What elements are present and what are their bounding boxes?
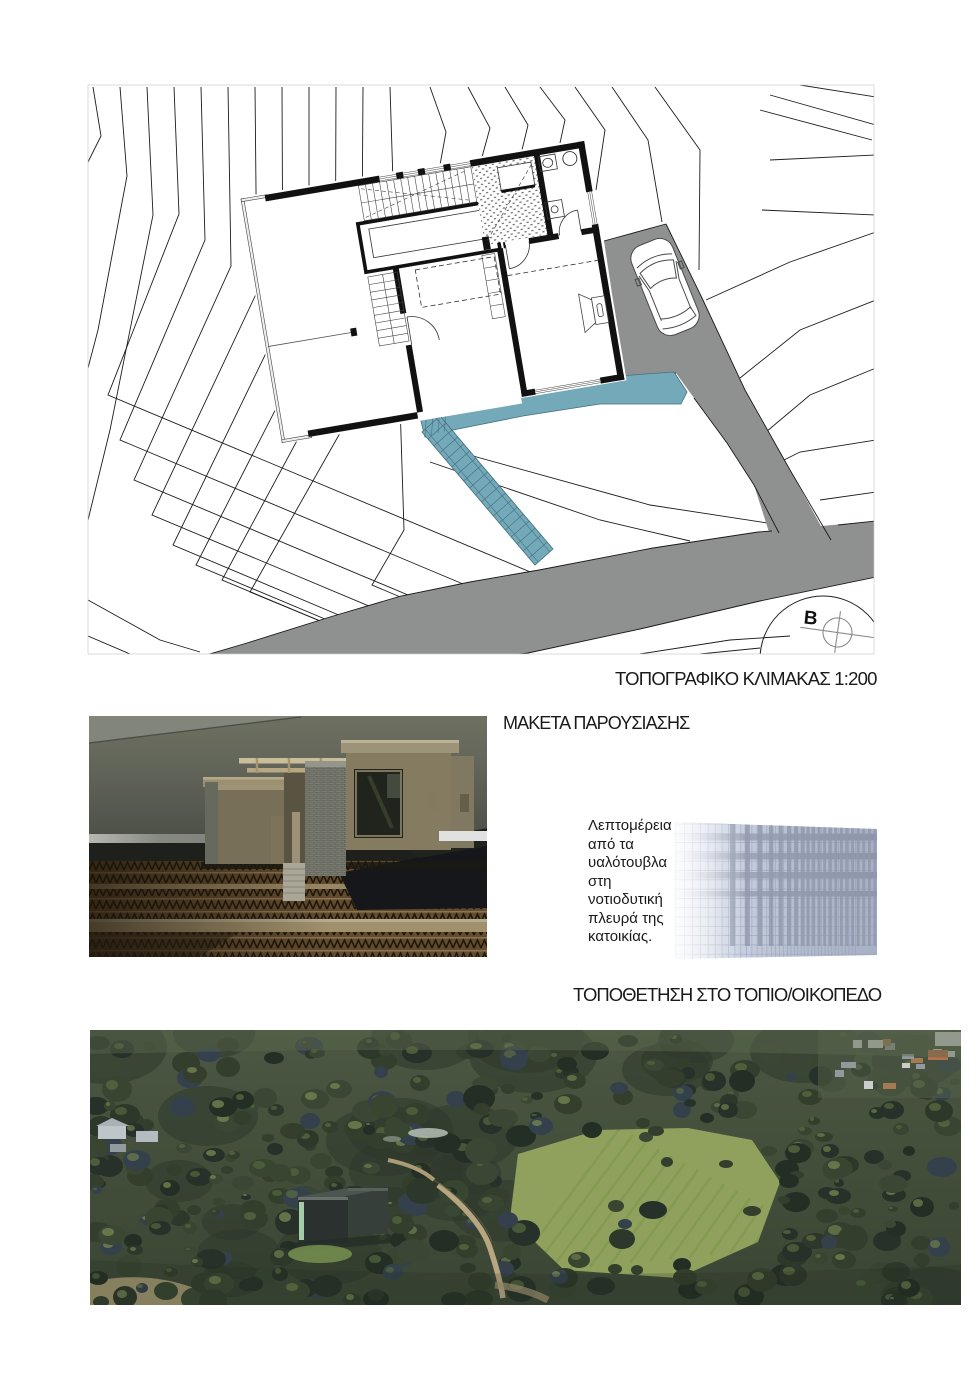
svg-text:B: B [803, 607, 819, 629]
